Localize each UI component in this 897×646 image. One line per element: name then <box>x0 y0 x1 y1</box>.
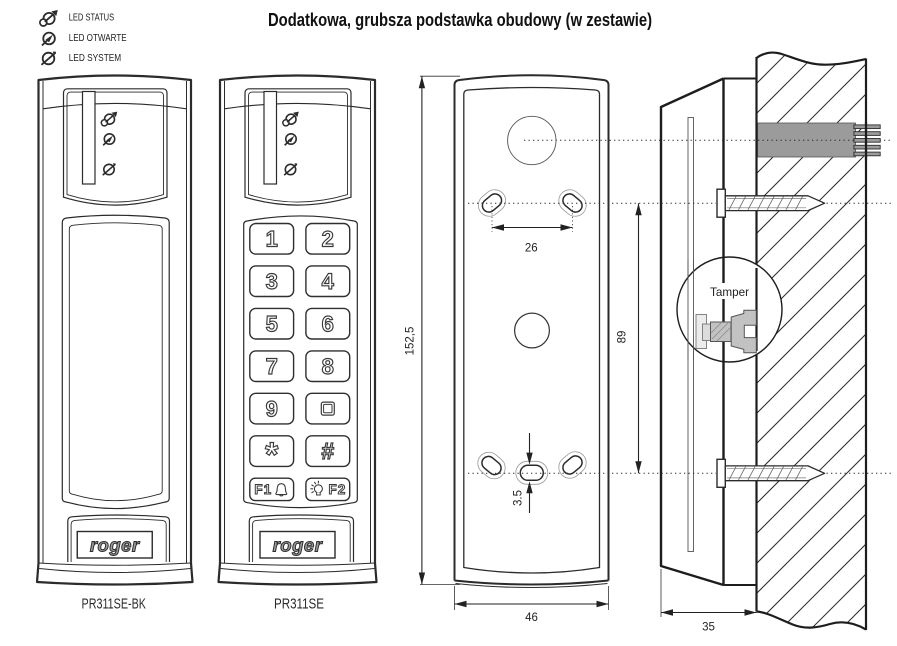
svg-text:LED OTWARTE: LED OTWARTE <box>69 33 127 44</box>
svg-text:roger: roger <box>273 535 324 556</box>
svg-text:8: 8 <box>322 354 334 379</box>
svg-text:LED SYSTEM: LED SYSTEM <box>69 53 122 64</box>
svg-text:PR311SE: PR311SE <box>274 596 324 613</box>
svg-text:Dodatkowa, grubsza podstawka o: Dodatkowa, grubsza podstawka obudowy (w … <box>268 9 652 30</box>
svg-text:F1: F1 <box>254 482 272 497</box>
svg-text:*: * <box>265 436 279 474</box>
svg-text:89: 89 <box>617 331 629 344</box>
svg-text:35: 35 <box>702 622 715 634</box>
svg-text:7: 7 <box>266 354 278 379</box>
svg-text:6: 6 <box>322 312 334 337</box>
svg-text:roger: roger <box>90 535 141 556</box>
svg-text:9: 9 <box>266 396 278 421</box>
svg-text:46: 46 <box>525 612 538 624</box>
svg-text:3.5: 3.5 <box>513 490 525 506</box>
svg-text:4: 4 <box>322 269 335 294</box>
svg-text:#: # <box>321 438 334 464</box>
svg-text:152,5: 152,5 <box>405 327 417 356</box>
svg-text:3: 3 <box>266 269 278 294</box>
svg-text:2: 2 <box>322 227 334 252</box>
svg-text:F2: F2 <box>329 482 347 497</box>
svg-text:LED STATUS: LED STATUS <box>69 13 115 24</box>
svg-text:1: 1 <box>266 227 278 252</box>
svg-text:PR311SE-BK: PR311SE-BK <box>82 596 147 613</box>
svg-text:Tamper: Tamper <box>710 285 749 299</box>
svg-text:5: 5 <box>266 312 278 337</box>
svg-text:26: 26 <box>525 243 538 255</box>
